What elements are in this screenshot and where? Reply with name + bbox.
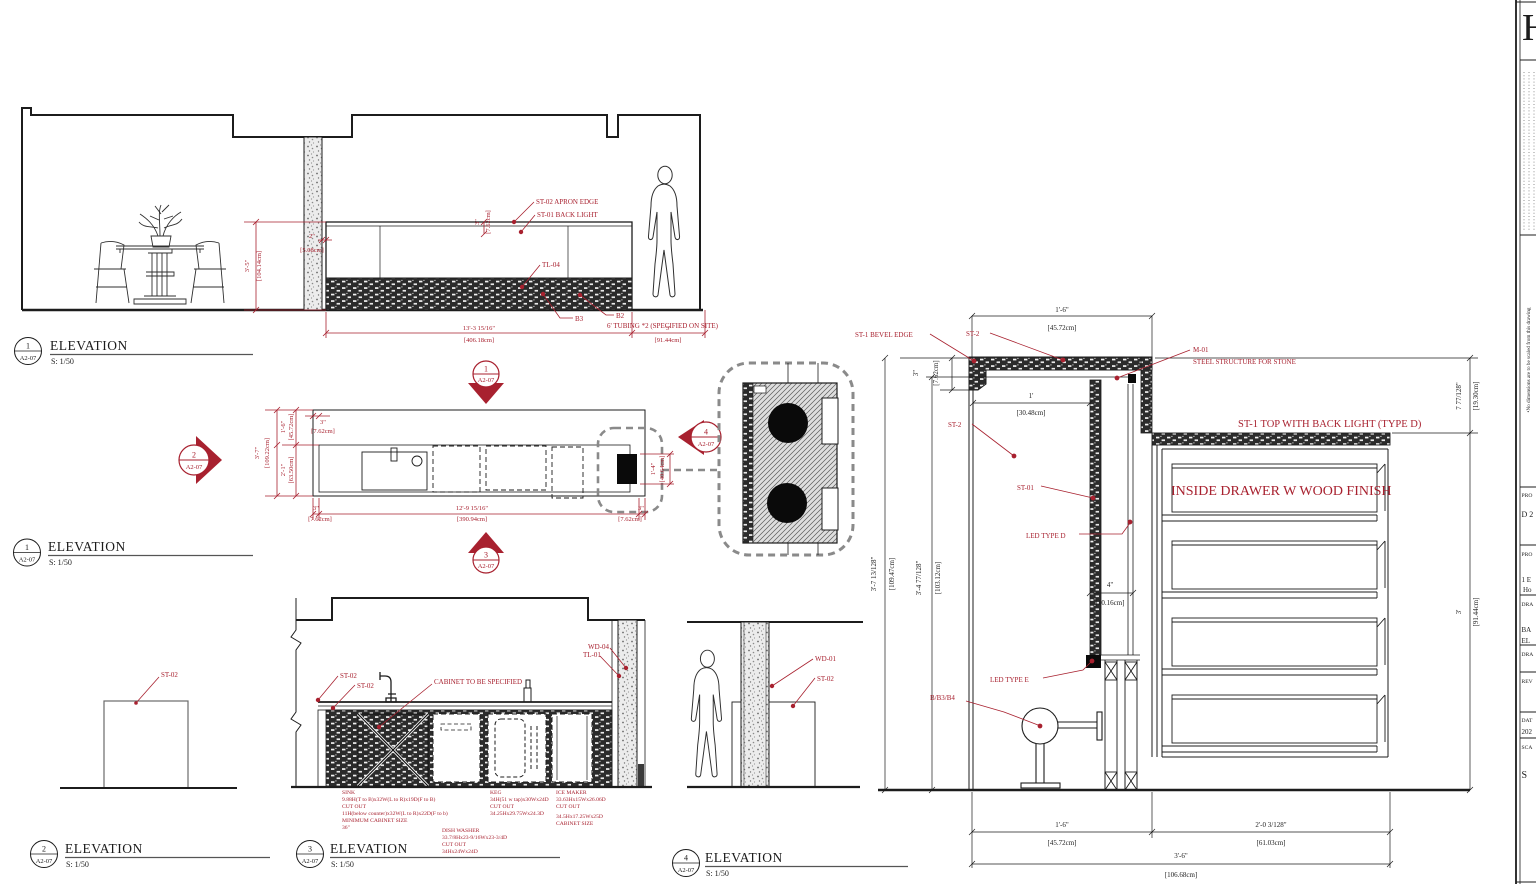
plan-title-num: 1 <box>25 543 29 552</box>
ice-note-line: 33.63Hx15Wx26.06D <box>556 797 606 803</box>
dw-note-line: CUT OUT <box>442 842 467 848</box>
field-value: S <box>1522 770 1528 781</box>
elev3-scale: S: 1/50 <box>331 860 354 869</box>
wall-column <box>304 137 322 310</box>
dim-tap-ft: 1'-4" <box>650 462 657 475</box>
elev1-marker-ref: A2-07 <box>20 355 37 362</box>
field-caption: DRA <box>1522 602 1534 608</box>
dim-height-ft: 3'-5" <box>244 259 251 272</box>
bar-counter <box>326 222 632 310</box>
sink-note-line: 11H(below counter)x32W(L to R)x22D(F to … <box>342 810 448 817</box>
dw-note-line: 33.7/8Hx23-9/16Wx23-3/4D <box>442 835 507 841</box>
dim-edge-left-ft: 3" <box>313 505 319 512</box>
dim-back-ft: 1'-6" <box>280 420 287 433</box>
dishwasher-note: DISH WASHER 33.7/8Hx23-9/16Wx23-3/4D CUT… <box>442 828 507 855</box>
plan-scale: S: 1/50 <box>49 558 72 567</box>
label-led-d: LED TYPE D <box>1026 532 1066 540</box>
plan-title-text: ELEVATION <box>48 539 126 554</box>
marker-left-ref: A2-07 <box>186 464 203 471</box>
cross-braced-posts <box>1105 660 1137 790</box>
dim-depth-cm: [109.22cm] <box>264 438 271 468</box>
detail-callout-big <box>719 363 853 555</box>
sink-note-line: 9.88H(T to B)x32W(L to R)x19D(F to B) <box>342 796 436 803</box>
break-line <box>291 598 301 787</box>
scale-figure-4 <box>691 650 721 777</box>
icemaker-cutout <box>552 714 592 782</box>
label-inside-drawer: INSIDE DRAWER W WOOD FINISH <box>1171 484 1392 499</box>
plan-view: 1 A2-07 2 A2-07 3 A2-07 4 A2-07 <box>14 361 854 573</box>
dim-edge-top-ft: 3" <box>320 419 326 426</box>
label-st01: ST-01 <box>1017 484 1034 492</box>
dim-b2-cm: [61.03cm] <box>1257 839 1286 847</box>
keg-tap <box>524 680 531 702</box>
elev4-marker-ref: A2-07 <box>678 867 695 874</box>
bracket-lines <box>1101 655 1140 660</box>
elev4-marker-num: 4 <box>684 854 688 863</box>
field-caption: PRO <box>1522 552 1533 558</box>
dim-slab-ft: 3" <box>912 370 920 377</box>
elev3-title: 3 A2-07 ELEVATION S: 1/50 <box>297 841 561 870</box>
dim-bar-cm: [30.48cm] <box>1017 409 1046 417</box>
field-caption: DAT <box>1522 718 1533 724</box>
dim-h2-cm: [103.12cm] <box>934 562 942 594</box>
elev2-marker-num: 2 <box>42 845 46 854</box>
sink-note: SINK 9.88H(T to B)x32W(L to R)x19D(F to … <box>342 790 448 831</box>
elev3-title-text: ELEVATION <box>330 841 408 856</box>
elev2-marker-ref: A2-07 <box>36 858 53 865</box>
dim-right-ft: 3' <box>1455 610 1463 615</box>
dim-edge-left-cm: [7.62cm] <box>308 516 332 523</box>
label-top-backlight: ST-1 TOP WITH BACK LIGHT (TYPE D) <box>1238 419 1422 430</box>
label-tubing: 6' TUBING *2 (SPECIFIED ON SITE) <box>607 322 719 330</box>
marker-right-ref: A2-07 <box>698 441 715 448</box>
sink-note-line: CUT OUT <box>342 804 367 810</box>
elev1-marker-num: 1 <box>26 342 30 351</box>
plan-title: 1 A2-07 ELEVATION S: 1/50 <box>14 539 254 567</box>
dim-length-ft: 13'-3 15/16" <box>463 325 496 332</box>
dim-total-ft: 3'-6" <box>1174 852 1188 860</box>
lower-top-slab <box>1152 433 1390 445</box>
steel-angle <box>1128 374 1136 383</box>
sink-note-line: SINK <box>342 790 355 796</box>
dim-plan-length-cm: [390.94cm] <box>457 516 487 523</box>
tile-band-tl04 <box>326 278 632 310</box>
field-value: EL <box>1522 637 1531 645</box>
st02-dot <box>134 701 138 705</box>
dim-offset-ft: 2" <box>309 233 315 240</box>
dim-gap-ft: 4" <box>1107 581 1114 589</box>
dim-top-ft: 1'-6" <box>1055 306 1069 314</box>
elev2-title: 2 A2-07 ELEVATION S: 1/50 <box>31 841 271 870</box>
ice-note-line: CABINET SIZE <box>556 821 594 827</box>
ice-note-line: CUT OUT <box>556 804 581 810</box>
marker-top-num: 1 <box>484 365 488 374</box>
keg-note-line: 34.25Hx29.75Wx24.3D <box>490 811 544 817</box>
tile-base-tl01 <box>638 764 644 787</box>
cabinet-end-panel <box>318 710 326 787</box>
icemaker-note: ICE MAKER 33.63Hx15Wx26.06D CUT OUT 34.5… <box>556 790 606 827</box>
st02-leader <box>136 677 159 703</box>
dim-length-cm: [406.18cm] <box>464 337 494 344</box>
dim-slab-cm: [7.62cm] <box>932 360 940 385</box>
marker-bottom-num: 3 <box>484 551 488 560</box>
elev1-scale: S: 1/50 <box>51 357 74 366</box>
stone-block <box>104 701 188 788</box>
ceiling-line <box>296 598 645 620</box>
plan-dimensions <box>265 407 674 520</box>
field-value: 1 E <box>1522 576 1532 584</box>
label-tl01: TL-01 <box>583 651 601 659</box>
label-m01: M-01 <box>1193 346 1209 354</box>
label-bevel-edge: ST-1 BEVEL EDGE <box>855 331 913 339</box>
elev1-title-text: ELEVATION <box>50 338 128 353</box>
cad-canvas: 3'-5" [104.14cm] 2" [5.08cm] 3" [7.62cm]… <box>0 0 1536 884</box>
label-b2: B2 <box>616 312 625 320</box>
plan-tap-tower <box>617 454 637 484</box>
keg-note-line: 34H(51 w tap)x30Wx24D <box>490 796 549 803</box>
elev4-scale: S: 1/50 <box>706 869 729 878</box>
sink-note-line: MINIMUM CABINET SIZE <box>342 818 408 824</box>
elevation-3-view: ST-02 ST-02 CABINET TO BE SPECIFIED WD-0… <box>291 598 652 869</box>
dim-walkway-cm: [91.44cm] <box>655 337 682 344</box>
dim-apron-ft: 3" <box>474 219 481 225</box>
label-m01-sub: STEEL STRUCTURE FOR STONE <box>1193 358 1296 366</box>
dim-back-cm: [45.72cm] <box>288 414 295 441</box>
section-detail: 1'-6" [45.72cm] 3" [7.62cm] 1' [30.48cm]… <box>855 306 1480 879</box>
field-caption: DRA <box>1522 652 1534 658</box>
appliance-cutouts <box>433 714 592 782</box>
dim-depth-ft: 3'-7" <box>254 446 261 459</box>
dim-apron-cm: [7.62cm] <box>485 210 492 234</box>
elev3-marker-num: 3 <box>308 845 312 854</box>
field-caption: PRO <box>1522 493 1533 499</box>
keg-note-line: CUT OUT <box>490 804 515 810</box>
label-stools: B/B3/B4 <box>930 694 955 702</box>
detail-dim-lines <box>882 313 1478 868</box>
elevation-1-view: 3'-5" [104.14cm] 2" [5.08cm] 3" [7.62cm]… <box>15 108 719 366</box>
dim-plan-length-ft: 12'-9 15/16" <box>456 505 489 512</box>
label-back-light: ST-01 BACK LIGHT <box>537 211 599 219</box>
dim-total-cm: [106.68cm] <box>1165 871 1197 879</box>
field-value: BA <box>1522 626 1532 634</box>
label-led-e: LED TYPE E <box>990 676 1029 684</box>
dim-b1-cm: [45.72cm] <box>1048 839 1077 847</box>
label-apron-edge: ST-02 APRON EDGE <box>536 198 598 206</box>
dim-offset-cm: [5.08cm] <box>300 247 324 254</box>
elev3-marker-ref: A2-07 <box>302 858 319 865</box>
elev1-title: 1 A2-07 ELEVATION S: 1/50 <box>15 338 254 367</box>
bar-front-face <box>969 390 973 790</box>
keg-note: KEG 34H(51 w tap)x30Wx24D CUT OUT 34.25H… <box>490 790 549 817</box>
ice-note-line: 34.5Hx17.25Wx25D <box>556 814 603 820</box>
label-st2: ST-2 <box>948 421 962 429</box>
dim-drop-ft: 7 77/128" <box>1455 382 1463 410</box>
label-st02: ST-02 <box>161 671 178 679</box>
marker-bottom-ref: A2-07 <box>478 563 495 570</box>
dim-gap-cm: [10.16cm] <box>1096 599 1125 607</box>
plan-appliances-dashed <box>433 446 583 498</box>
elev2-title-text: ELEVATION <box>65 841 143 856</box>
field-caption: SCA <box>1522 745 1533 751</box>
dim-bar-ft: 1' <box>1029 392 1034 400</box>
marker-top-ref: A2-07 <box>478 377 495 384</box>
dim-edge-top-cm: [7.62cm] <box>311 428 335 435</box>
dw-note-line: DISH WASHER <box>442 828 480 834</box>
dim-h1-cm: [109.47cm] <box>888 558 896 590</box>
marker-1-top: 1 A2-07 <box>468 361 504 404</box>
dim-top-cm: [45.72cm] <box>1048 324 1077 332</box>
plan-title-ref: A2-07 <box>19 557 36 564</box>
dim-right-cm: [91.44cm] <box>1472 598 1480 627</box>
elev4-title: 4 A2-07 ELEVATION S: 1/50 <box>673 850 909 879</box>
dim-edge-right-cm: [7.62cm] <box>618 516 642 523</box>
wall-column-4 <box>741 622 769 787</box>
stone-panel-st01 <box>1090 380 1101 655</box>
wall-finish-wd04 <box>618 620 637 787</box>
dining-set <box>94 205 226 304</box>
field-value: Ho <box>1523 586 1532 594</box>
dim-height-cm: [104.14cm] <box>256 251 263 281</box>
label-st2-top: ST-2 <box>966 330 980 338</box>
label-b3: B3 <box>575 315 584 323</box>
bar-top-slab <box>969 357 1152 390</box>
dim-front-ft: 2'-1" <box>280 463 287 476</box>
elev4-title-text: ELEVATION <box>705 850 783 865</box>
label-wd01: WD-01 <box>815 655 836 663</box>
dim-tap-cm: [40.64cm] <box>659 456 666 483</box>
label-st02-4: ST-02 <box>817 675 834 683</box>
label-st02-a: ST-02 <box>340 672 357 680</box>
drawing-sheet: 3'-5" [104.14cm] 2" [5.08cm] 3" [7.62cm]… <box>0 0 1536 884</box>
dim-h1-ft: 3'-7 13/128" <box>870 557 878 592</box>
field-value: D 2 <box>1522 510 1534 519</box>
dim-edge-right-ft: 3" <box>638 505 644 512</box>
dim-h2-ft: 3'-4 77/128" <box>915 561 923 596</box>
label-cabinet: CABINET TO BE SPECIFIED <box>434 678 522 686</box>
sink-note-line: 36" <box>342 825 350 831</box>
dim-b2-ft: 2'-0 3/128" <box>1255 821 1286 829</box>
drawer-unit <box>1152 433 1390 757</box>
marker-right-num: 4 <box>704 428 708 437</box>
title-block: H •No dimensions are to be scaled from t… <box>1516 0 1536 884</box>
back-panel-lines <box>1128 384 1133 655</box>
dw-note-line: 34Hx24Wx24D <box>442 849 478 855</box>
label-tl04: TL-04 <box>542 261 560 269</box>
label-wd04: WD-04 <box>588 643 609 651</box>
elev2-scale: S: 1/50 <box>66 860 89 869</box>
address-text-block <box>1524 72 1534 230</box>
logo-letter: H <box>1522 7 1536 49</box>
elevation-2-view: ST-02 2 A2-07 ELEVATION S: 1/50 <box>31 671 271 869</box>
dim-front-cm: [63.50cm] <box>288 457 295 484</box>
plan-countertop-outline <box>313 410 645 496</box>
dim-drop-cm: [19.30cm] <box>1472 382 1480 411</box>
plan-sink <box>362 448 427 490</box>
marker-2-left: 2 A2-07 <box>179 436 222 484</box>
marker-left-num: 2 <box>192 451 196 460</box>
dim-b1-ft: 1'-6" <box>1055 821 1069 829</box>
marker-4-right: 4 A2-07 <box>678 420 721 455</box>
marker-3-bottom: 3 A2-07 <box>468 532 504 573</box>
field-caption: REV <box>1522 679 1533 685</box>
elev4-leaders <box>770 659 815 708</box>
scale-figure <box>648 166 679 297</box>
field-value: 202 <box>1522 728 1533 736</box>
faucet <box>380 672 396 702</box>
label-st02-b: ST-02 <box>357 682 374 690</box>
bar-stool <box>1021 708 1102 788</box>
keg-note-line: KEG <box>490 790 502 796</box>
ice-note-line: ICE MAKER <box>556 790 587 796</box>
elevation-4-view: WD-01 ST-02 4 A2-07 ELEVATION S: 1/50 <box>673 622 909 878</box>
no-scale-note: •No dimensions are to be scaled from thi… <box>1525 307 1532 412</box>
